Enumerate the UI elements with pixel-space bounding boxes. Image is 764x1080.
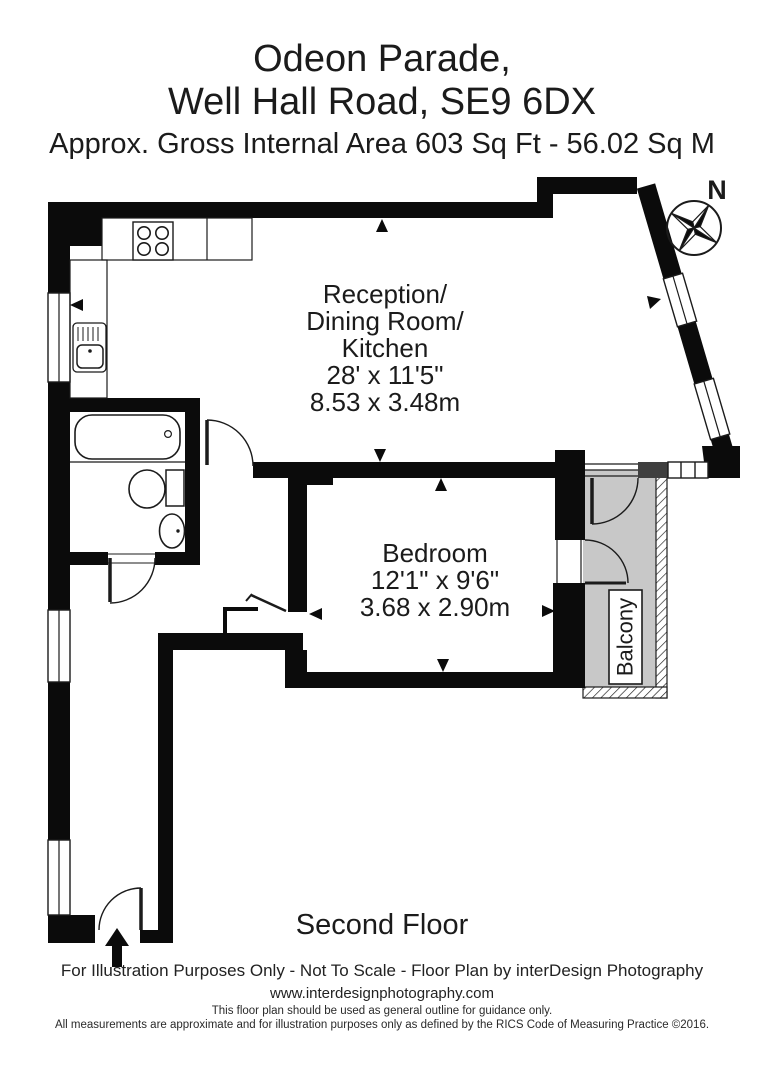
- room-label-reception-1: Reception/: [323, 279, 448, 309]
- wall-bedroom-bottom: [285, 672, 585, 688]
- reception-hall-door: [207, 420, 253, 466]
- wall-accent-block: [638, 462, 668, 478]
- dim-arrow-left-kitchen: [70, 299, 83, 311]
- window-corridor-upper: [48, 610, 70, 682]
- wall-bedroom-right-upper: [555, 450, 585, 540]
- room-dim-bedroom-metric: 3.68 x 2.90m: [360, 592, 510, 622]
- dim-arrow-down-reception: [374, 449, 386, 462]
- balcony-railing-right: [656, 470, 667, 698]
- basin-icon: [160, 514, 185, 548]
- room-dim-reception-imperial: 28' x 11'5": [327, 360, 444, 390]
- footer-website: www.interdesignphotography.com: [0, 985, 764, 1002]
- dim-arrow-down-bedroom: [437, 659, 449, 672]
- wall-bathroom-right: [185, 398, 200, 565]
- room-labels: Reception/ Dining Room/ Kitchen 28' x 11…: [296, 279, 510, 941]
- footer-disclaimer: For Illustration Purposes Only - Not To …: [0, 961, 764, 981]
- dim-arrow-up-bedroom: [435, 478, 447, 491]
- window-corridor-lower: [48, 840, 70, 915]
- toilet-icon: [129, 470, 184, 508]
- room-label-bedroom: Bedroom: [382, 538, 488, 568]
- wall-bedroom-left: [288, 478, 307, 612]
- floorplan-page: Odeon Parade, Well Hall Road, SE9 6DX Ap…: [0, 0, 764, 1080]
- dim-arrow-diagonal: [647, 296, 661, 309]
- sink-icon: [73, 323, 106, 372]
- kitchen-counter: [102, 218, 252, 260]
- bathroom-door: [108, 554, 155, 603]
- balcony-railing-bottom: [583, 687, 667, 698]
- hob-icon: [133, 222, 173, 260]
- entrance-door: [99, 888, 141, 930]
- window-balcony-head: [668, 462, 708, 478]
- north-label: N: [707, 175, 727, 205]
- wall-bedroom-right-lower: [553, 583, 585, 688]
- floorplan-svg: Balcony: [0, 0, 764, 1080]
- room-dim-reception-metric: 8.53 x 3.48m: [310, 387, 460, 417]
- bathtub-icon: [70, 415, 185, 462]
- window-diagonal-upper: [663, 273, 696, 327]
- footer-fine-print-1: This floor plan should be used as genera…: [0, 1005, 764, 1017]
- wall-bathroom-top: [70, 398, 200, 412]
- wall-corner-bottomleft: [48, 915, 95, 943]
- wall-corner-topleft: [48, 202, 102, 246]
- wall-corridor-right: [158, 650, 173, 943]
- room-dim-bedroom-imperial: 12'1" x 9'6": [371, 565, 499, 595]
- room-label-reception-2: Dining Room/: [306, 306, 464, 336]
- dim-arrow-left-bedroom: [309, 608, 322, 620]
- bathroom-fixtures: [70, 415, 185, 548]
- wall-niche: [223, 607, 258, 611]
- room-label-reception-3: Kitchen: [342, 333, 429, 363]
- floor-label: Second Floor: [296, 909, 469, 941]
- window-kitchen-left: [48, 293, 70, 382]
- footer-fine-print-2: All measurements are approximate and for…: [0, 1019, 764, 1031]
- wall-top: [48, 202, 553, 218]
- wall-bathroom-bottom: [48, 552, 108, 565]
- room-label-balcony: Balcony: [613, 598, 638, 676]
- window-diagonal-lower: [694, 378, 730, 439]
- wall-reception-bedroom: [253, 462, 557, 478]
- dim-arrow-up-top: [376, 219, 388, 232]
- wall-hall-bottom: [158, 633, 303, 650]
